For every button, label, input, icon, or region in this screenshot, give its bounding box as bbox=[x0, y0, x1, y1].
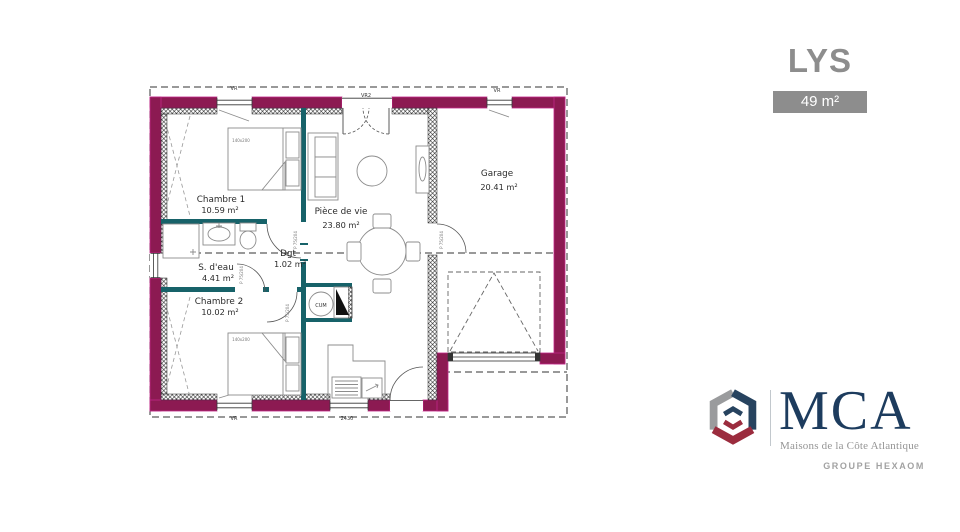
brand-name: MCA bbox=[779, 383, 913, 439]
room-chambre2-area: 10.02 m² bbox=[201, 307, 238, 317]
door-label: P 75/204 bbox=[439, 231, 444, 249]
room-chambre2-name: Chambre 2 bbox=[195, 297, 244, 307]
window-garage bbox=[487, 97, 512, 117]
dimension-label: 2430 bbox=[341, 416, 354, 422]
entry-door-opening bbox=[390, 400, 423, 411]
room-garage-area: 20.41 m² bbox=[480, 182, 517, 192]
room-living-name: Pièce de vie bbox=[315, 206, 368, 217]
shutter-label: VR bbox=[494, 88, 501, 94]
bed-size-label: 140x200 bbox=[232, 138, 250, 143]
brand-divider bbox=[770, 390, 771, 446]
brand-group: GROUPE HEXAOM bbox=[777, 461, 925, 471]
window-kitchen bbox=[330, 400, 368, 411]
shutter-label: VR bbox=[231, 86, 238, 92]
room-bathroom-area: 4.41 m² bbox=[202, 273, 234, 283]
page: 140x200 140x200 bbox=[0, 0, 960, 532]
room-living-area: 23.80 m² bbox=[322, 220, 359, 230]
window-bathroom bbox=[150, 253, 161, 278]
room-chambre1-area: 10.59 m² bbox=[201, 205, 238, 215]
room-chambre1-name: Chambre 1 bbox=[197, 195, 246, 205]
door-label: P 75/204 bbox=[239, 266, 244, 284]
mca-cube-logo-icon bbox=[704, 386, 762, 450]
room-garage-name: Garage bbox=[481, 169, 513, 179]
water-heater: CUM bbox=[309, 287, 352, 318]
furniture-kitchen bbox=[328, 345, 385, 400]
room-hall-name: Dgt bbox=[280, 249, 296, 259]
door-label: P 75/204 bbox=[293, 231, 298, 249]
window-chambre1 bbox=[217, 97, 252, 121]
door-label: P 75/204 bbox=[285, 304, 290, 322]
floor-plan: 140x200 140x200 bbox=[148, 84, 572, 428]
shutter-label: VR bbox=[231, 416, 238, 422]
bed-size-label: 140x200 bbox=[232, 337, 250, 342]
area-badge: 49 m² bbox=[773, 91, 867, 113]
brand-subtitle: Maisons de la Côte Atlantique bbox=[780, 440, 919, 452]
shutter-label: VR2 bbox=[361, 93, 371, 99]
garage-door bbox=[448, 272, 540, 361]
room-hall-area: 1.02 m² bbox=[274, 259, 306, 269]
room-bathroom-name: S. d'eau bbox=[198, 263, 234, 273]
model-title: LYS bbox=[768, 42, 872, 80]
water-heater-label: CUM bbox=[315, 303, 326, 309]
